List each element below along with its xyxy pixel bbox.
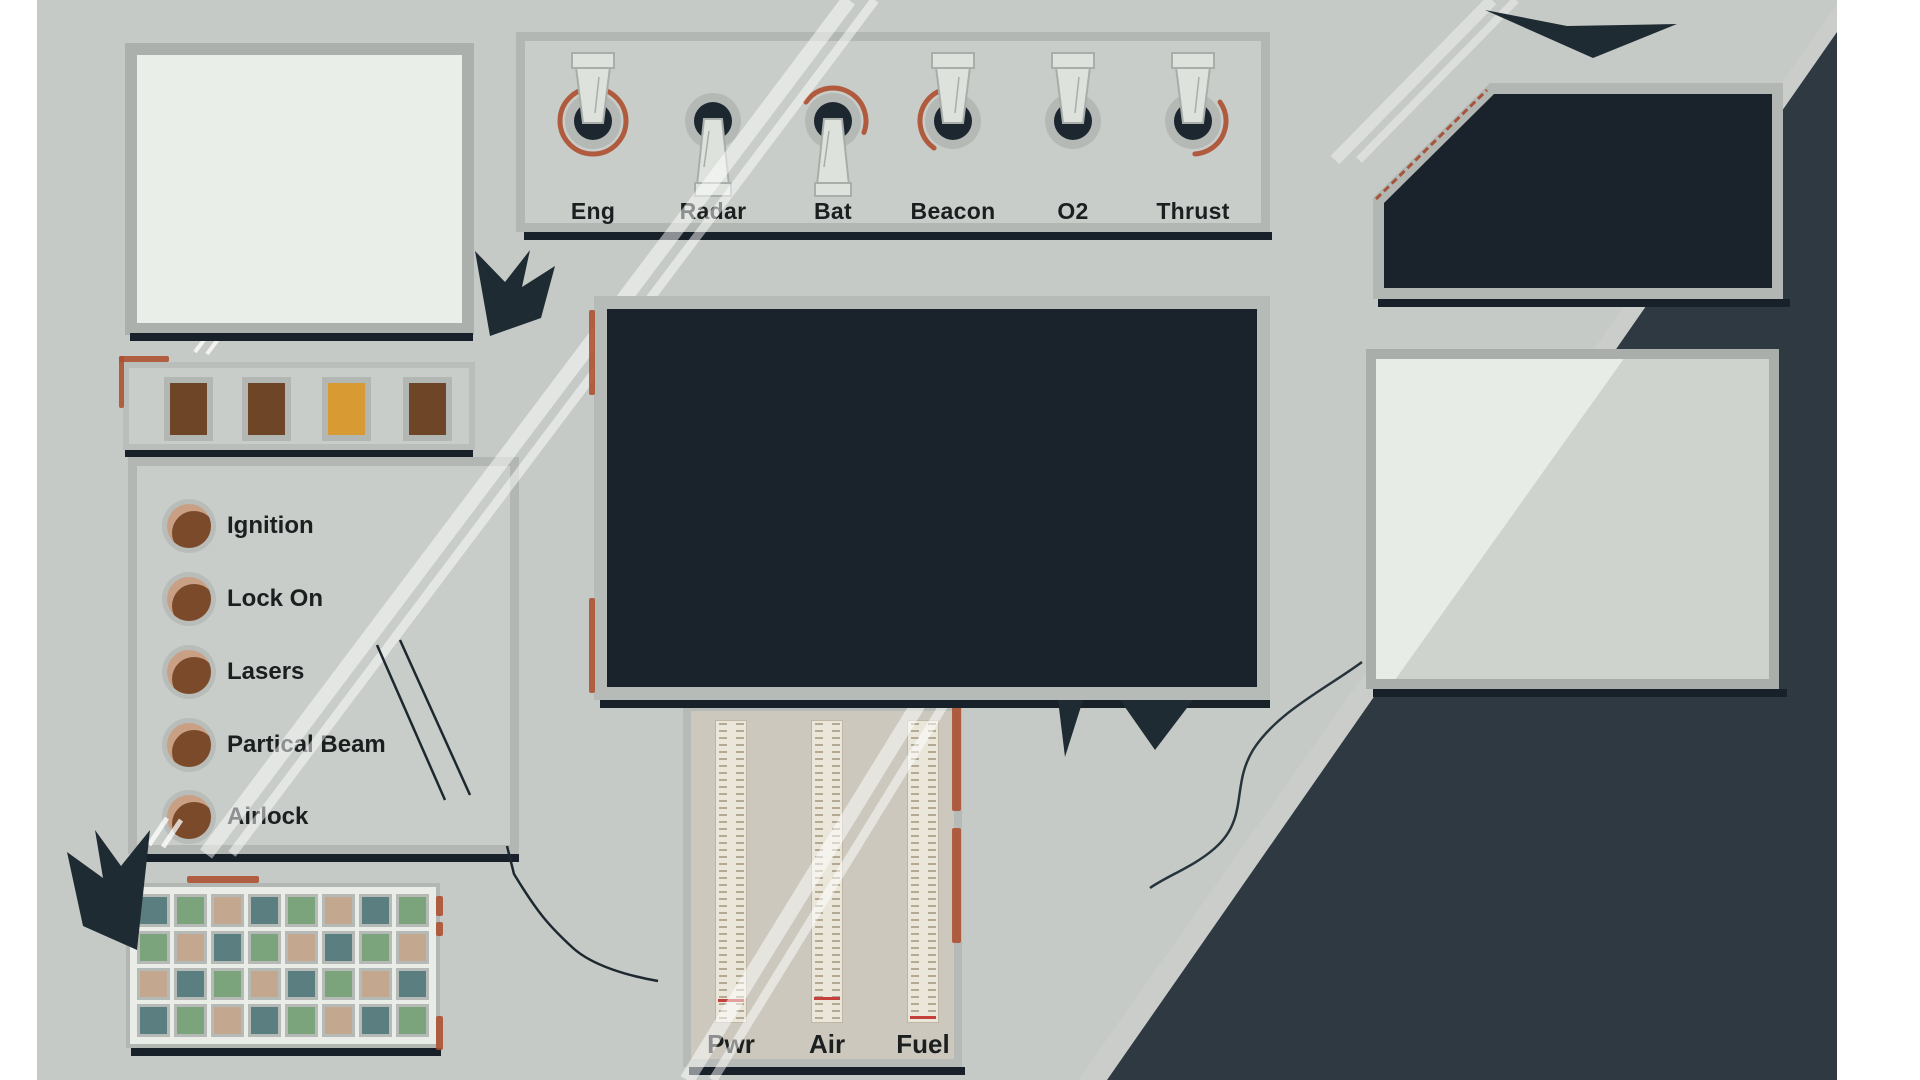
switch-row: EngRadarBatBeaconO2Thrust <box>525 41 1261 225</box>
rust-mark <box>589 598 595 693</box>
rust-mark <box>436 896 443 916</box>
indicator-1-button[interactable] <box>170 383 207 435</box>
cockpit-illustration: EngRadarBatBeaconO2Thrust IgnitionLock O… <box>0 0 1920 1080</box>
arrow-right-icon <box>475 250 555 336</box>
keypad-key-green[interactable] <box>248 931 281 964</box>
viewport-glass <box>1384 94 1772 288</box>
wire-left <box>507 846 658 981</box>
rust-mark <box>952 706 961 811</box>
keypad-key-green[interactable] <box>211 968 244 1001</box>
rust-mark <box>952 828 961 943</box>
keypad-key-green[interactable] <box>396 1004 429 1037</box>
control-button-label: Lasers <box>227 645 304 699</box>
rust-mark <box>119 356 124 408</box>
gauge-panel-shadow <box>689 1067 965 1075</box>
keypad-key-tan[interactable] <box>211 894 244 927</box>
keypad-key-tan[interactable] <box>322 894 355 927</box>
round-button-face <box>167 577 211 621</box>
keypad-key-tan[interactable] <box>137 968 170 1001</box>
toggle-label: Eng <box>537 198 649 225</box>
side-screen-shadow <box>1373 689 1787 697</box>
control-button-label: Lock On <box>227 572 323 626</box>
keypad-key-green[interactable] <box>285 1004 318 1037</box>
keypad-key-tan[interactable] <box>322 1004 355 1037</box>
viewport-window <box>1373 83 1783 299</box>
round-button-face <box>167 504 211 548</box>
keypad-key-green[interactable] <box>174 894 207 927</box>
keypad-key-green[interactable] <box>174 1004 207 1037</box>
gauge-air <box>811 720 843 1023</box>
switch-panel-shadow <box>524 232 1272 240</box>
keypad-key-teal[interactable] <box>248 1004 281 1037</box>
keypad-key-tan[interactable] <box>359 968 392 1001</box>
button-ignition[interactable] <box>162 499 216 553</box>
side-screen-reflection <box>1376 359 1769 679</box>
control-button-label: Ignition <box>227 499 314 553</box>
keypad-key-teal[interactable] <box>137 894 170 927</box>
keypad-key-teal[interactable] <box>137 1004 170 1037</box>
chevron-bird-icon <box>1485 10 1677 58</box>
gauge-panel: PwrAirFuel <box>683 703 962 1067</box>
gauge-level-indicator <box>718 999 744 1002</box>
toggle-label: Beacon <box>897 198 1009 225</box>
round-button-face <box>167 650 211 694</box>
control-button-label: Airlock <box>227 790 308 844</box>
toggle-switch-icon <box>791 47 875 201</box>
control-button-label: Partical Beam <box>227 718 386 772</box>
toggle-beacon[interactable]: Beacon <box>911 47 995 225</box>
keypad-key-tan[interactable] <box>211 1004 244 1037</box>
toggle-switch-icon <box>911 47 995 201</box>
side-screen <box>1366 349 1779 689</box>
keypad-key-tan[interactable] <box>174 931 207 964</box>
toggle-bat[interactable]: Bat <box>791 47 875 225</box>
keypad-key-teal[interactable] <box>322 931 355 964</box>
toggle-eng[interactable]: Eng <box>551 47 635 225</box>
toggle-thrust[interactable]: Thrust <box>1151 47 1235 225</box>
nav-screen <box>125 43 474 335</box>
toggle-switch-icon <box>671 47 755 201</box>
round-button-face <box>167 723 211 767</box>
rust-mark <box>436 1016 443 1050</box>
control-panel-shadow <box>133 854 519 862</box>
indicator-4-button[interactable] <box>409 383 446 435</box>
gauge-label: Air <box>787 1029 867 1060</box>
gauge-pwr <box>715 720 747 1023</box>
keypad-key-green[interactable] <box>285 894 318 927</box>
gauge-fuel <box>907 720 939 1023</box>
toggle-switch-icon <box>551 47 635 201</box>
keypad-key-green[interactable] <box>359 931 392 964</box>
toggle-switch-icon <box>1151 47 1235 201</box>
indicator-frame <box>403 377 452 441</box>
keypad-key-teal[interactable] <box>285 968 318 1001</box>
button-partical-beam[interactable] <box>162 718 216 772</box>
keypad-key-green[interactable] <box>396 894 429 927</box>
keypad-key-teal[interactable] <box>211 931 244 964</box>
indicator-frame <box>164 377 213 441</box>
toggle-switch-icon <box>1031 47 1115 201</box>
keypad-key-teal[interactable] <box>359 894 392 927</box>
keypad-shadow <box>131 1048 441 1056</box>
main-screen <box>594 296 1270 700</box>
indicator-panel-shadow <box>125 450 473 457</box>
indicator-button-panel <box>123 362 475 450</box>
rust-mark <box>119 356 169 362</box>
toggle-label: O2 <box>1017 198 1129 225</box>
toggle-o2[interactable]: O2 <box>1031 47 1115 225</box>
gauge-level-indicator <box>910 1016 936 1019</box>
viewport-shadow <box>1378 299 1790 307</box>
keypad-key-green[interactable] <box>322 968 355 1001</box>
button-lock-on[interactable] <box>162 572 216 626</box>
round-button-face <box>167 795 211 839</box>
indicator-frame <box>242 377 291 441</box>
toggle-label: Thrust <box>1137 198 1249 225</box>
button-lasers[interactable] <box>162 645 216 699</box>
keypad-key-teal[interactable] <box>248 894 281 927</box>
keypad-key-tan[interactable] <box>396 931 429 964</box>
keypad-key-tan[interactable] <box>285 931 318 964</box>
keypad-key-tan[interactable] <box>248 968 281 1001</box>
main-screen-shadow <box>600 700 1270 708</box>
keypad-key-teal[interactable] <box>359 1004 392 1037</box>
color-keypad <box>126 883 440 1048</box>
gauge-level-indicator <box>814 997 840 1000</box>
rust-mark <box>187 876 259 883</box>
nav-screen-shadow <box>130 333 473 341</box>
toggle-label: Radar <box>657 198 769 225</box>
paint-drip <box>1058 700 1083 757</box>
keypad-key-teal[interactable] <box>174 968 207 1001</box>
button-airlock[interactable] <box>162 790 216 844</box>
gauge-label: Pwr <box>691 1029 771 1060</box>
keypad-key-teal[interactable] <box>396 968 429 1001</box>
switch-panel: EngRadarBatBeaconO2Thrust <box>516 32 1270 232</box>
control-room-scene: EngRadarBatBeaconO2Thrust IgnitionLock O… <box>37 0 1837 1080</box>
control-button-panel: IgnitionLock OnLasersPartical BeamAirloc… <box>128 457 519 854</box>
toggle-radar[interactable]: Radar <box>671 47 755 225</box>
rust-mark <box>589 310 595 395</box>
indicator-frame <box>322 377 371 441</box>
indicator-2-button[interactable] <box>248 383 285 435</box>
toggle-label: Bat <box>777 198 889 225</box>
indicator-3-button[interactable] <box>328 383 365 435</box>
rust-mark <box>436 922 443 936</box>
gauge-label: Fuel <box>883 1029 963 1060</box>
keypad-key-green[interactable] <box>137 931 170 964</box>
